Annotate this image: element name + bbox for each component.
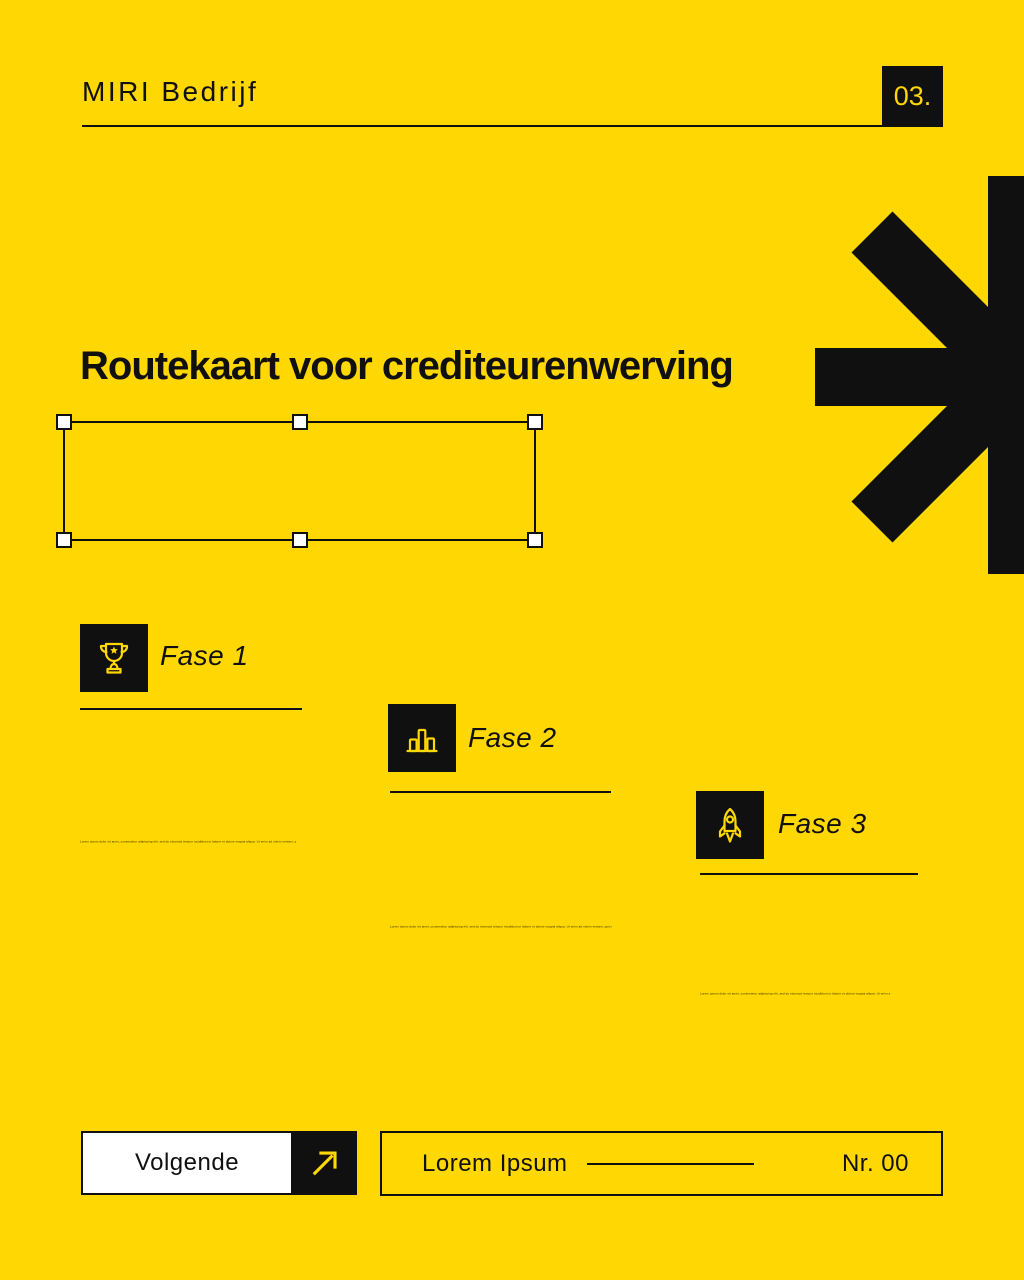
arrow-up-right-icon xyxy=(305,1143,345,1183)
rocket-icon xyxy=(710,805,750,845)
page-number-label: 03. xyxy=(894,81,932,112)
resize-handle-top-right[interactable] xyxy=(527,414,543,430)
footer-divider-line xyxy=(587,1163,754,1165)
phase-2-description: Lorem ipsum dolor sit amet, consectetur … xyxy=(390,924,612,932)
footer-number-label: Nr. 00 xyxy=(842,1150,909,1178)
slide-title: Routekaart voor crediteurenwerving xyxy=(80,344,733,389)
next-button[interactable]: Volgende xyxy=(81,1131,293,1195)
phase-1-description: Lorem ipsum dolor sit amet, consectetur … xyxy=(80,839,296,847)
phase-3-label: Fase 3 xyxy=(778,808,867,840)
phase-1-label: Fase 1 xyxy=(160,640,249,672)
header-divider xyxy=(82,125,943,127)
selected-text-box[interactable] xyxy=(63,421,536,541)
phase-1-icon-box xyxy=(80,624,148,692)
resize-handle-bottom-right[interactable] xyxy=(527,532,543,548)
phase-2-divider xyxy=(390,791,611,793)
resize-handle-bottom-left[interactable] xyxy=(56,532,72,548)
trophy-icon xyxy=(94,638,134,678)
half-asterisk-icon xyxy=(815,175,1024,575)
phase-3-divider xyxy=(700,873,918,875)
footer-reference-box: Lorem Ipsum Nr. 00 xyxy=(380,1131,943,1196)
slide-canvas: MIRI Bedrijf 03. Routekaart voor credite… xyxy=(0,0,1024,1280)
phase-1-divider xyxy=(80,708,302,710)
bar-chart-icon xyxy=(402,718,442,758)
footer-reference-label: Lorem Ipsum xyxy=(422,1150,568,1178)
resize-handle-top-left[interactable] xyxy=(56,414,72,430)
resize-handle-bottom-middle[interactable] xyxy=(292,532,308,548)
phase-3-description: Lorem ipsum dolor sit amet, consectetur … xyxy=(700,991,890,999)
phase-3-icon-box xyxy=(696,791,764,859)
next-arrow-button[interactable] xyxy=(293,1131,357,1195)
brand-title: MIRI Bedrijf xyxy=(82,76,258,108)
page-number-badge: 03. xyxy=(882,66,943,127)
resize-handle-top-middle[interactable] xyxy=(292,414,308,430)
phase-2-icon-box xyxy=(388,704,456,772)
phase-2-label: Fase 2 xyxy=(468,722,557,754)
